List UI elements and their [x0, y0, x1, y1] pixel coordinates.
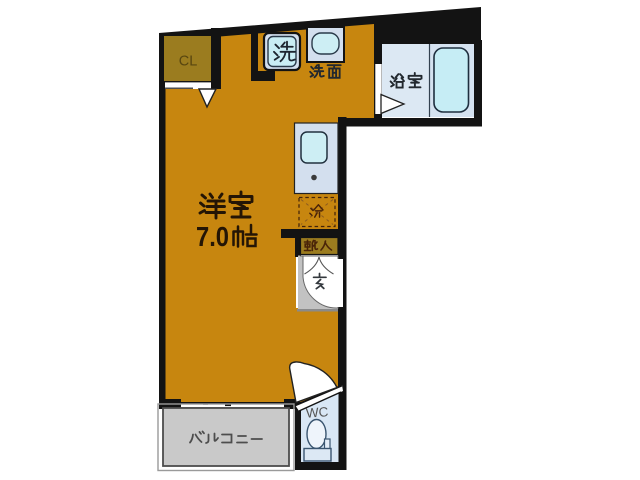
svg-text:CL: CL	[179, 54, 198, 70]
svg-text:WC: WC	[305, 404, 329, 421]
svg-text:7.0: 7.0	[196, 221, 229, 252]
